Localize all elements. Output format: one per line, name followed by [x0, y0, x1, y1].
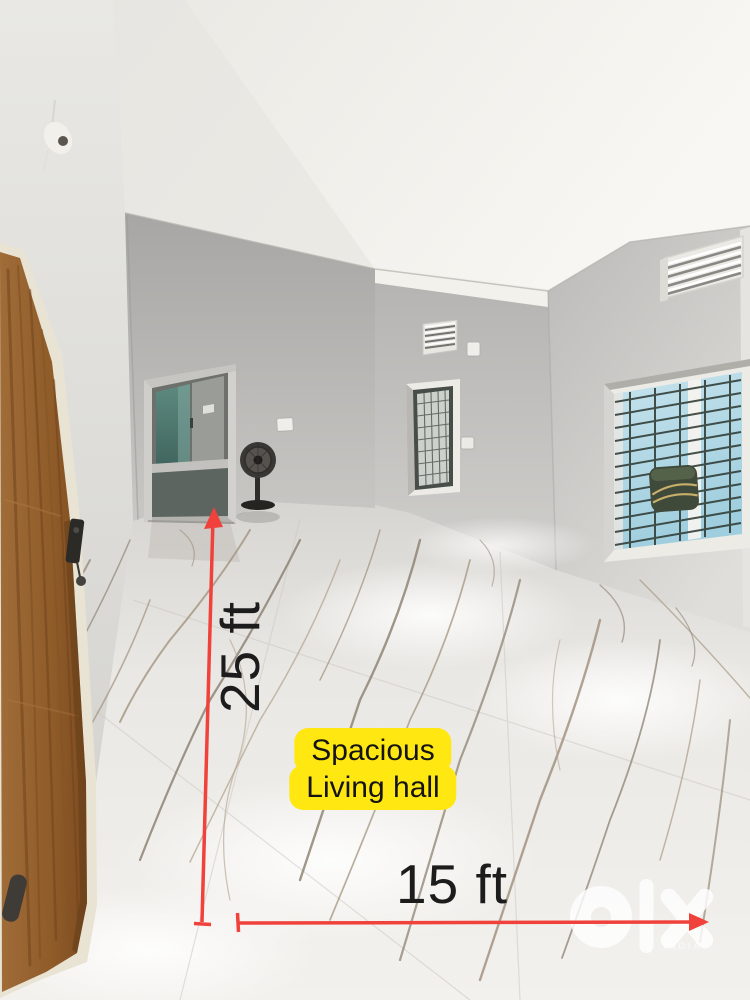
window-right	[604, 359, 750, 562]
outlet-box	[461, 437, 474, 449]
room-photo	[0, 0, 750, 1000]
switch-box	[467, 342, 480, 356]
window-back	[406, 379, 460, 496]
wall-switch	[277, 418, 294, 432]
ventilator-small	[423, 320, 457, 355]
interior-doorway	[144, 364, 236, 524]
window-bag	[649, 464, 700, 512]
listing-photo: 25 ft 15 ft Spacious Living hall INDIA	[0, 0, 750, 1000]
